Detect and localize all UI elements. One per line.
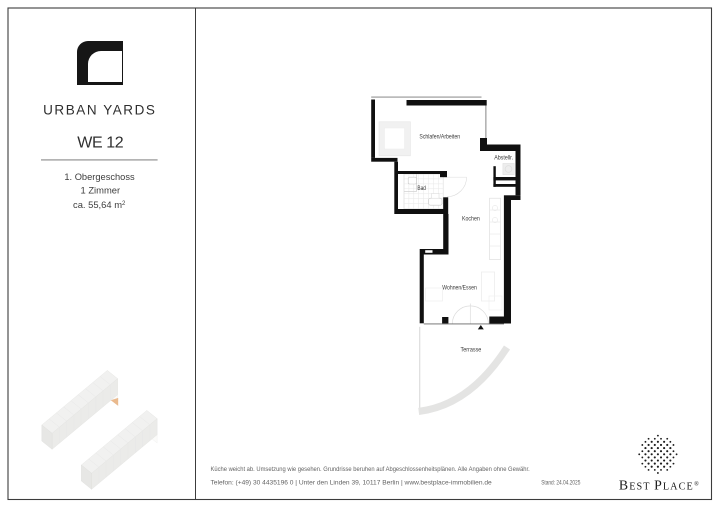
svg-text:URBAN YARDS: URBAN YARDS	[43, 102, 156, 117]
svg-text:Schlafen/Arbeiten: Schlafen/Arbeiten	[419, 134, 460, 141]
svg-text:1 Zimmer: 1 Zimmer	[81, 184, 121, 195]
svg-text:Kochen: Kochen	[462, 216, 480, 223]
svg-text:ca. 55,64 m2: ca. 55,64 m2	[73, 199, 126, 210]
svg-text:Wohnen/Essen: Wohnen/Essen	[442, 285, 477, 292]
svg-text:Küche weicht ab. Umsetzung wie: Küche weicht ab. Umsetzung wie gesehen. …	[211, 466, 530, 473]
svg-text:BEST PLACE®: BEST PLACE®	[619, 477, 700, 492]
svg-text:Terrasse: Terrasse	[461, 347, 482, 354]
svg-text:Bad: Bad	[417, 185, 426, 192]
svg-text:WE 12: WE 12	[77, 135, 124, 152]
svg-text:Telefon: (+49) 30 4435196 0 |: Telefon: (+49) 30 4435196 0 | Unter den …	[211, 479, 493, 486]
svg-text:1. Obergeschoss: 1. Obergeschoss	[64, 172, 135, 182]
svg-text:Abstellr.: Abstellr.	[494, 154, 513, 161]
svg-text:Stand: 24.04.2025: Stand: 24.04.2025	[541, 479, 581, 486]
